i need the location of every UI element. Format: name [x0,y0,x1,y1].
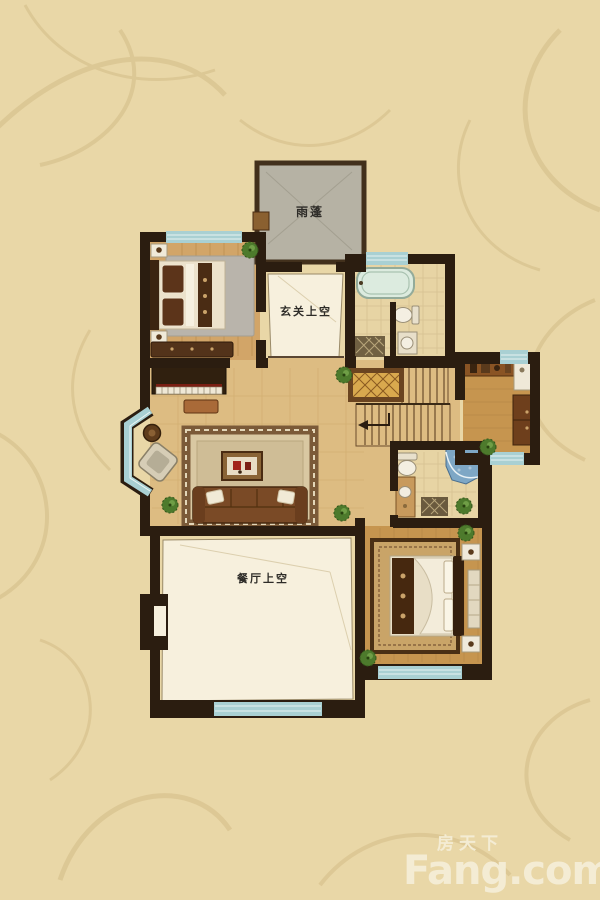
bathroom1-sink-icon [398,332,417,354]
study-appliance-icon [514,362,531,390]
plant-icon [458,525,474,541]
bathroom1-window [366,252,408,265]
plant-icon [336,367,352,383]
plant-icon [334,505,350,521]
hall-doormat-icon [348,368,404,402]
canopy-step [253,212,269,230]
study-cabinet-icon [513,395,531,445]
bedroom2-bench-icon [468,570,480,628]
bedroom2-window [378,666,462,679]
study-top-window [500,350,528,364]
floorplan-image: 雨蓬 玄关上空 餐厅上空 房天下 Fang.com [0,0,600,900]
plant-icon [360,650,376,666]
bedroom1-bed-icon [150,260,225,330]
dining-void [162,538,353,701]
bedroom2-nightstand2-icon [462,636,480,652]
coffee-table-icon [222,452,262,480]
bedroom1-nightstand-icon [151,244,167,257]
bathtub-icon [357,268,414,298]
foyer-void-label: 玄关上空 [280,304,332,318]
bathroom1-mat-icon [355,336,385,357]
bathroom2-mat-icon [421,497,448,516]
dining-window [214,702,322,716]
floorplan-canvas: 雨蓬 玄关上空 餐厅上空 房天下 Fang.com [0,0,600,900]
bathroom1-toilet-icon [394,306,419,324]
plant-icon [456,498,472,514]
bedroom2-nightstand-icon [462,544,480,560]
bedroom1-window [166,231,242,243]
bedroom2-bed-icon [390,556,464,636]
study-bottom-window [490,452,524,465]
canopy-label: 雨蓬 [296,204,324,219]
piano-bench-icon [184,400,218,413]
bathroom2-toilet-icon [397,453,417,476]
bathroom2-vanity-sink-icon [396,477,415,517]
watermark-en-text: Fang.com [403,848,600,894]
bedroom1-dresser-icon [151,342,233,357]
sofa-icon [193,487,307,523]
side-table-icon [144,425,161,442]
plant-icon [162,497,178,513]
chimney-inner [154,606,166,636]
plant-icon [242,242,258,258]
dining-void-label: 餐厅上空 [236,571,289,585]
plant-icon [480,439,496,455]
piano-icon [152,366,226,394]
